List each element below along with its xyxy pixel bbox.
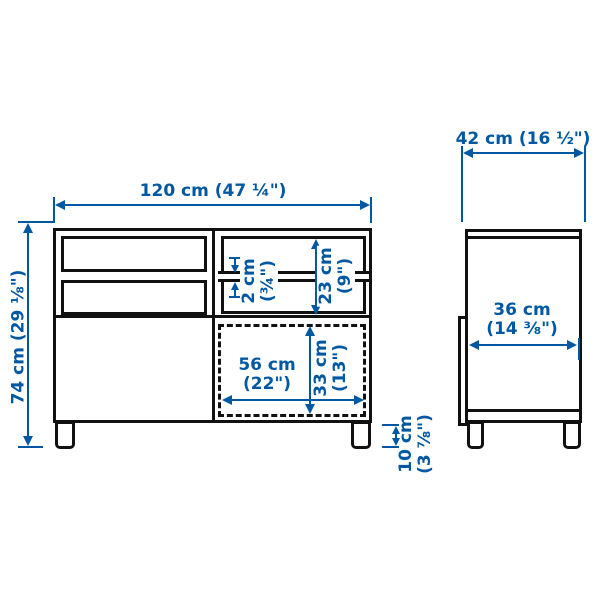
door-width-in: (22") [238,375,295,394]
compartment-height-label: 23 cm (9") [317,245,355,306]
depth-arrowhead-left [463,148,473,158]
side-top-panel-line [465,236,582,239]
width-dim-line [60,204,365,206]
shelf-arrowhead-down [231,265,239,273]
side-leg-right [563,421,581,449]
front-leg-right [351,421,371,449]
door-height-arrowhead-bottom [305,404,315,414]
shelf-arrow-bottom-stem [234,288,236,296]
shelf-thickness-cm: 2 cm [240,258,259,304]
shelf-thickness-label: 2 cm (¾") [240,256,278,306]
width-dim-label: 120 cm (47 ¼") [140,182,287,201]
compartment-height-cm: 23 cm [317,247,336,304]
leg-height-label: 10 cm (3 ⅞") [397,414,435,474]
inner-depth-ext-line-right [578,338,580,360]
width-arrowhead-right [360,200,370,210]
inner-depth-label: 36 cm (14 ⅜") [486,301,558,339]
side-bottom-panel-line [465,409,582,412]
inner-depth-arrowhead-right [567,340,577,350]
inner-depth-arrowhead-left [469,340,479,350]
inner-depth-dim-line [474,344,572,346]
depth-dim-line [468,152,579,154]
height-arrowhead-top [23,223,33,233]
door-width-dim-line [227,399,359,401]
compartment-height-in: (9") [336,247,355,304]
front-drawer-bottom [61,280,207,315]
door-width-cm: 56 cm [238,356,295,375]
leg-height-cm: 10 cm [397,414,416,474]
height-ext-line-bottom [18,446,43,448]
depth-arrowhead-right [574,148,584,158]
shelf-thickness-in: (¾") [259,258,278,304]
width-arrowhead-left [55,200,65,210]
furniture-dimension-diagram: 120 cm (47 ¼") 74 cm (29 ⅛") 2 cm (¾") 2… [0,0,600,600]
front-mid-shelf-line [53,315,372,318]
inner-depth-in: (14 ⅜") [486,320,558,339]
door-height-cm: 33 cm [312,339,331,396]
inner-depth-cm: 36 cm [486,301,558,320]
depth-dim-label: 42 cm (16 ½") [456,130,591,149]
width-ext-line-right [370,197,372,223]
door-width-arrowhead-left [222,395,232,405]
height-dim-label: 74 cm (29 ⅛") [9,270,28,405]
door-height-in: (13") [331,339,350,396]
front-center-divider [212,228,215,423]
door-width-label: 56 cm (22") [238,356,295,394]
side-door-profile [458,316,468,426]
depth-ext-line-right [584,146,586,222]
leg-height-in: (3 ⅞") [416,414,435,474]
height-arrowhead-bottom [23,436,33,446]
front-leg-left [55,421,75,449]
front-drawer-top [61,236,207,272]
door-height-label: 33 cm (13") [312,337,350,398]
door-height-arrowhead-top [305,326,315,336]
side-leg-left [467,421,484,449]
door-width-arrowhead-right [354,395,364,405]
